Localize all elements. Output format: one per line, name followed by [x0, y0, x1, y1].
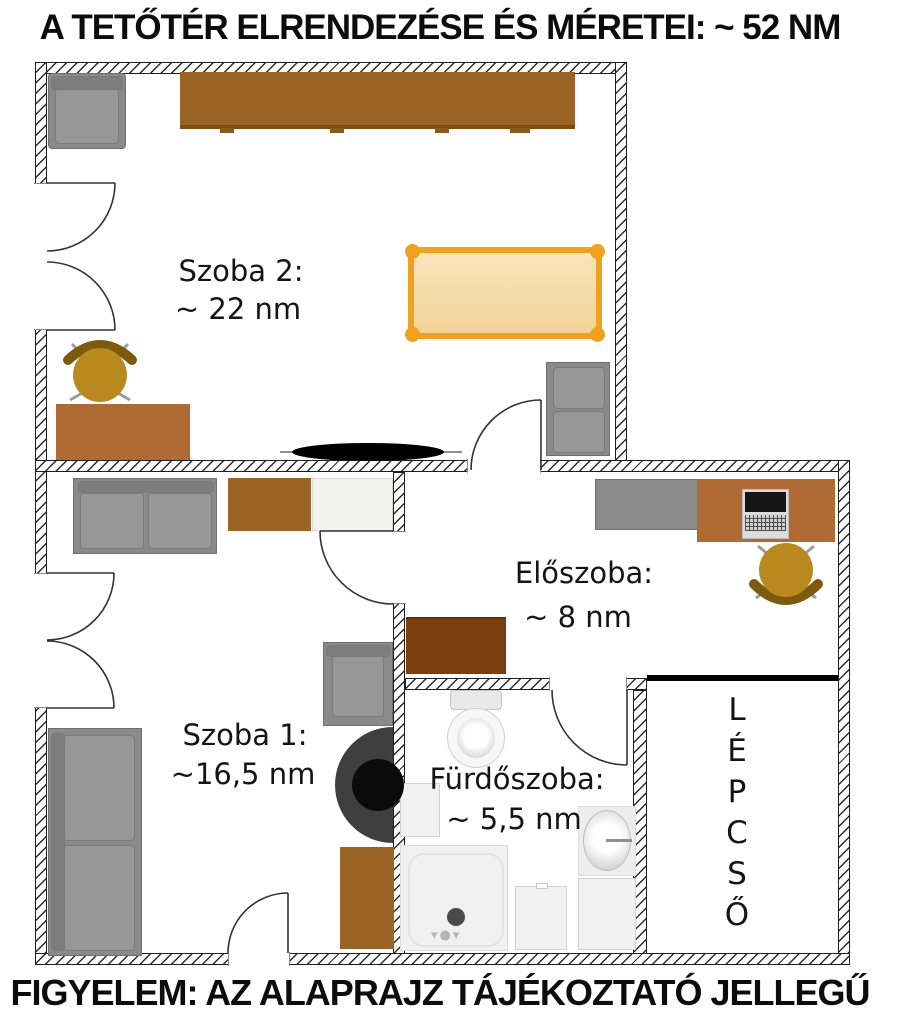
- lepcso-letter: L: [725, 690, 749, 731]
- door-szoba1-hall-icon: [320, 531, 393, 604]
- floor-plan-page: A TETŐTÉR ELRENDEZÉSE ÉS MÉRETEI: ~ 52 N…: [0, 0, 897, 1023]
- ceiling-fan-icon: [292, 443, 444, 461]
- label-szoba1-name: Szoba 1:: [183, 718, 308, 752]
- label-szoba2-area: ~ 22 nm: [175, 292, 301, 326]
- lepcso-letter: C: [725, 813, 749, 854]
- label-szoba1-area: ~16,5 nm: [171, 757, 316, 791]
- label-furdoszoba-area: ~ 5,5 nm: [446, 802, 581, 836]
- plan-linework: [0, 0, 897, 1023]
- door-szoba1-bottom-icon: [228, 893, 288, 953]
- speaker-cone-icon: [352, 759, 404, 811]
- office-chair2-icon: [754, 543, 818, 600]
- label-furdoszoba-name: Fürdőszoba:: [429, 762, 604, 796]
- office-chair-icon: [68, 344, 132, 402]
- lepcso-letter: P: [725, 772, 749, 813]
- door-szoba2-hall-icon: [471, 400, 541, 470]
- door-bathroom-icon: [552, 690, 627, 765]
- lepcso-letter: É: [725, 731, 749, 772]
- lepcso-letter: Ő: [725, 895, 749, 936]
- lepcso-letter: S: [725, 854, 749, 895]
- label-eloszoba-area: ~ 8 nm: [524, 600, 632, 634]
- label-lepcso: L É P C S Ő: [725, 690, 749, 936]
- label-eloszoba-name: Előszoba:: [515, 556, 653, 590]
- double-door-szoba1-icon: [47, 573, 114, 708]
- label-szoba2-name: Szoba 2:: [179, 254, 304, 288]
- double-door-szoba2-icon: [47, 183, 115, 330]
